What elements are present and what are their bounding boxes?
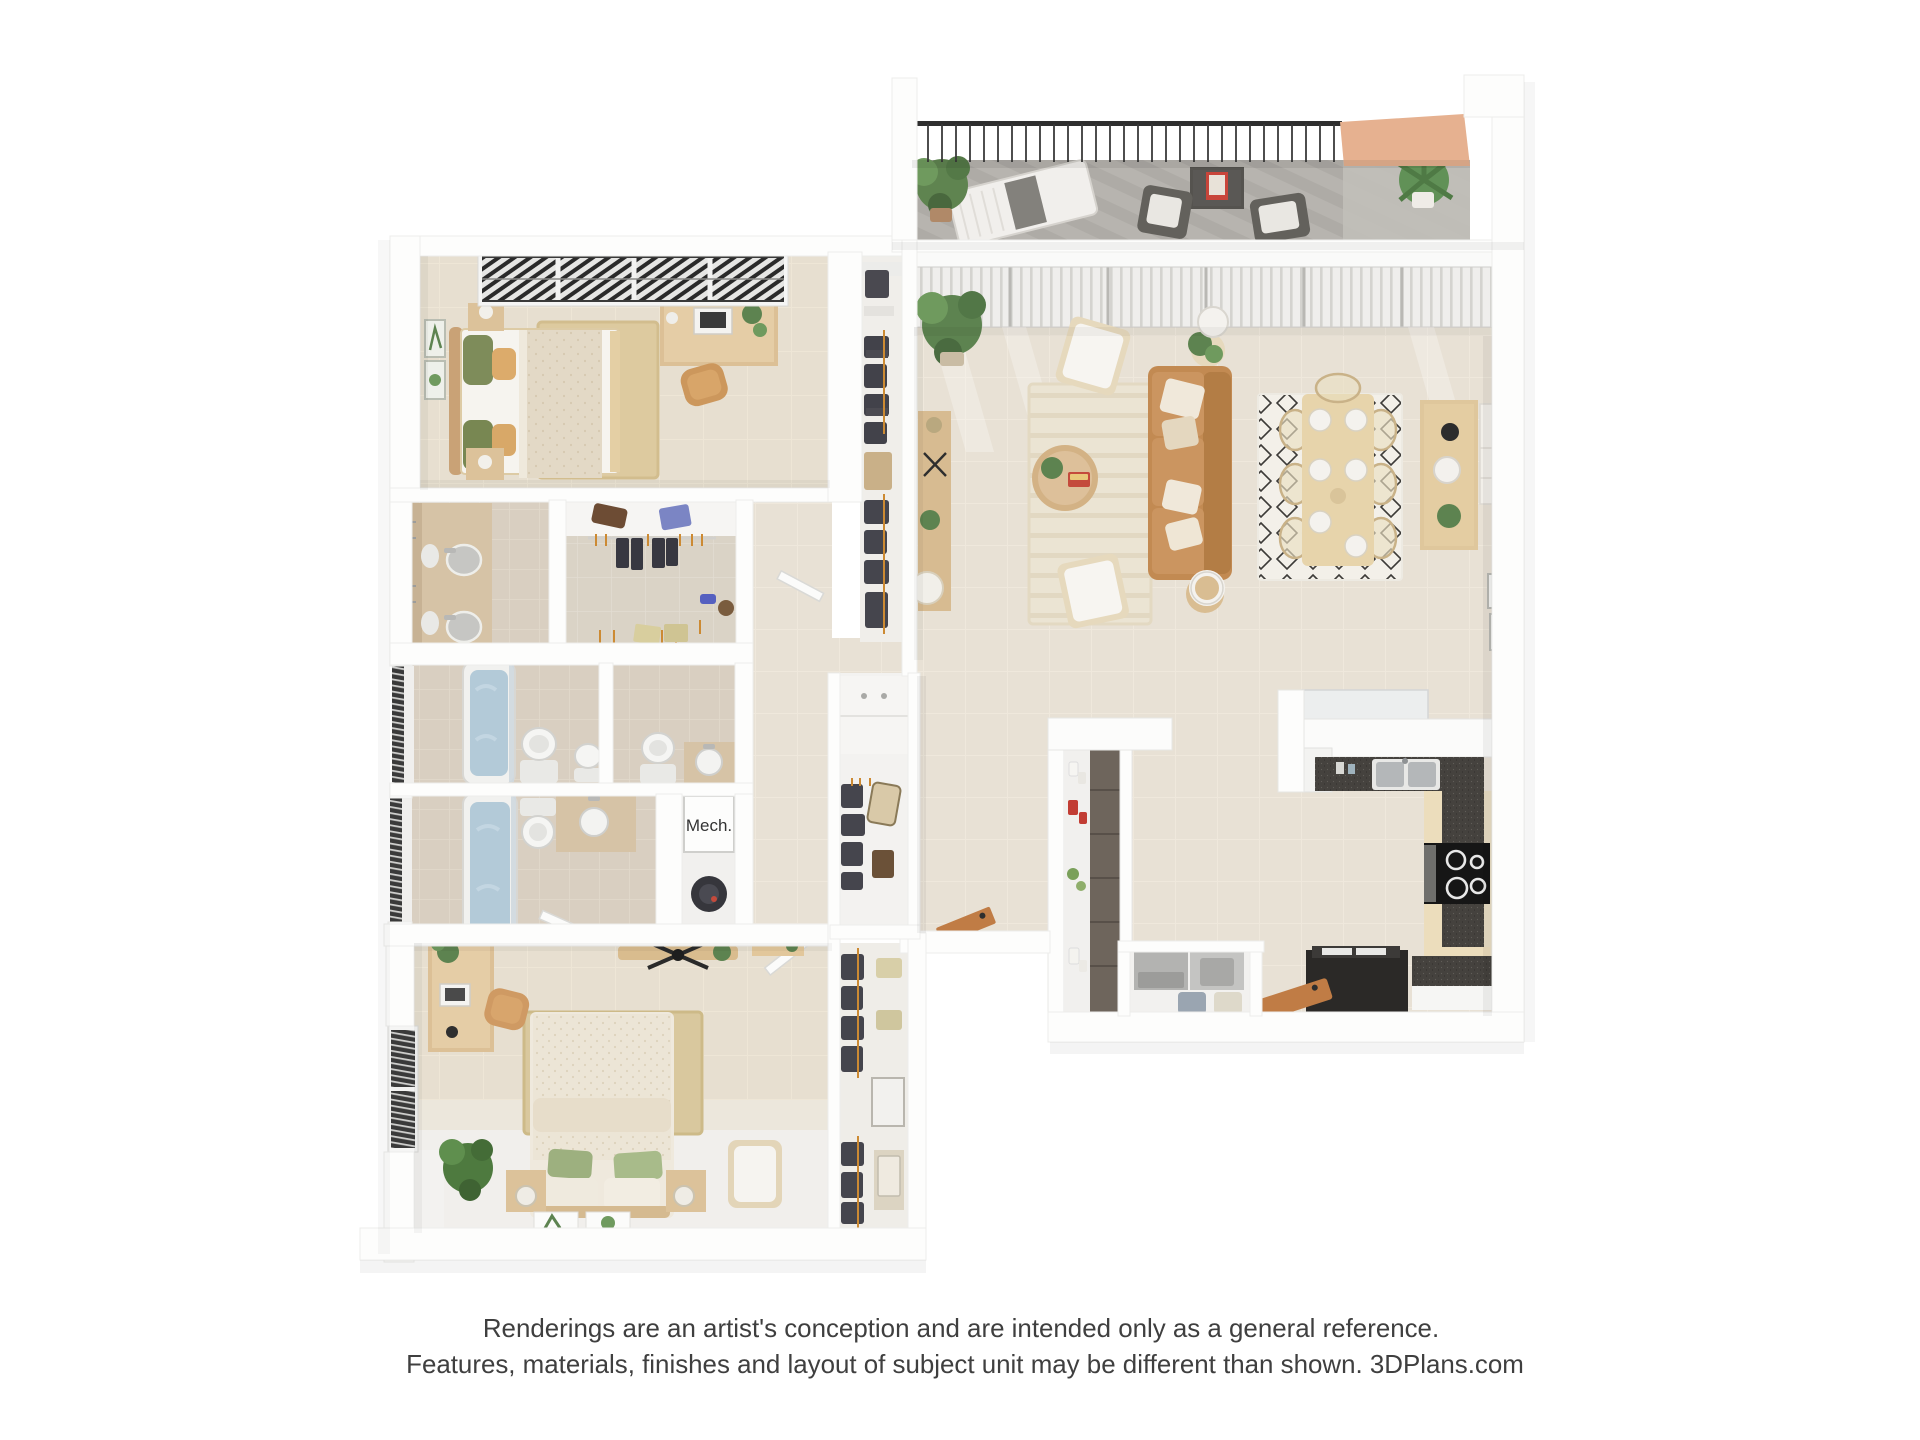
svg-text:Mech.: Mech. xyxy=(686,816,732,835)
svg-text:Renderings are an artist's con: Renderings are an artist's conception an… xyxy=(483,1315,1439,1343)
svg-text:Features, materials, finishes: Features, materials, finishes and layout… xyxy=(406,1351,1524,1379)
